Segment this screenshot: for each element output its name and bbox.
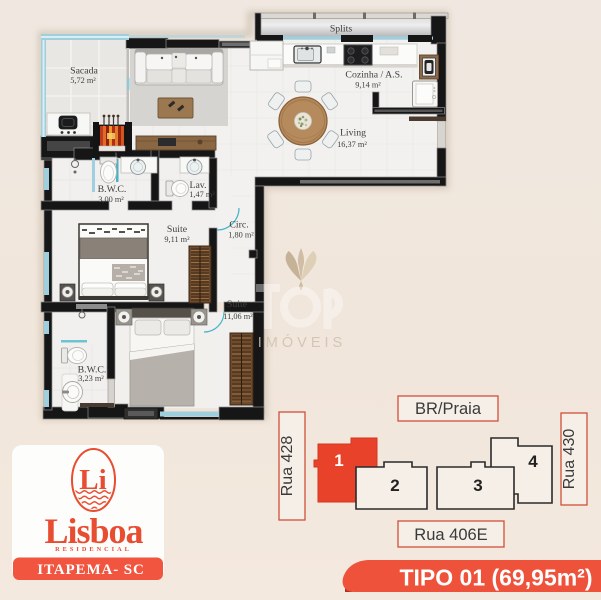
svg-text:Rua 430: Rua 430: [561, 429, 578, 490]
svg-text:Sacada: Sacada: [70, 66, 98, 77]
svg-text:Circ.: Circ.: [229, 220, 248, 231]
svg-text:Suite: Suite: [227, 299, 248, 310]
svg-text:3,23 m²: 3,23 m²: [78, 374, 104, 383]
svg-text:Suite: Suite: [167, 224, 188, 235]
svg-text:16,37 m²: 16,37 m²: [337, 140, 367, 149]
svg-text:1,80 m²: 1,80 m²: [228, 231, 254, 240]
svg-text:TIPO 01 (69,95m²): TIPO 01 (69,95m²): [399, 565, 592, 591]
svg-text:Splits: Splits: [330, 24, 353, 35]
svg-text:IMÓVEIS: IMÓVEIS: [258, 334, 346, 351]
svg-text:1: 1: [334, 451, 343, 470]
svg-text:3: 3: [473, 476, 482, 495]
svg-text:Cozinha / A.S.: Cozinha / A.S.: [345, 70, 402, 81]
svg-text:BR/Praia: BR/Praia: [415, 400, 482, 418]
svg-text:3,00 m²: 3,00 m²: [98, 195, 124, 204]
svg-text:RESIDENCIAL: RESIDENCIAL: [55, 546, 132, 553]
svg-text:B.W.C.: B.W.C.: [98, 184, 127, 195]
svg-text:Rua 406E: Rua 406E: [414, 526, 487, 544]
svg-text:5,72 m²: 5,72 m²: [70, 76, 96, 85]
svg-text:Lisboa: Lisboa: [44, 511, 143, 551]
svg-text:2: 2: [390, 476, 399, 495]
svg-text:1,47 m²: 1,47 m²: [189, 190, 215, 199]
svg-text:9,11 m²: 9,11 m²: [164, 235, 190, 244]
svg-text:4: 4: [528, 452, 538, 471]
svg-text:9,14 m²: 9,14 m²: [355, 81, 381, 90]
svg-text:Living: Living: [340, 128, 366, 139]
svg-text:Rua 428: Rua 428: [279, 436, 296, 497]
svg-text:ITAPEMA- SC: ITAPEMA- SC: [37, 562, 145, 578]
svg-text:11,06 m²: 11,06 m²: [223, 312, 253, 321]
